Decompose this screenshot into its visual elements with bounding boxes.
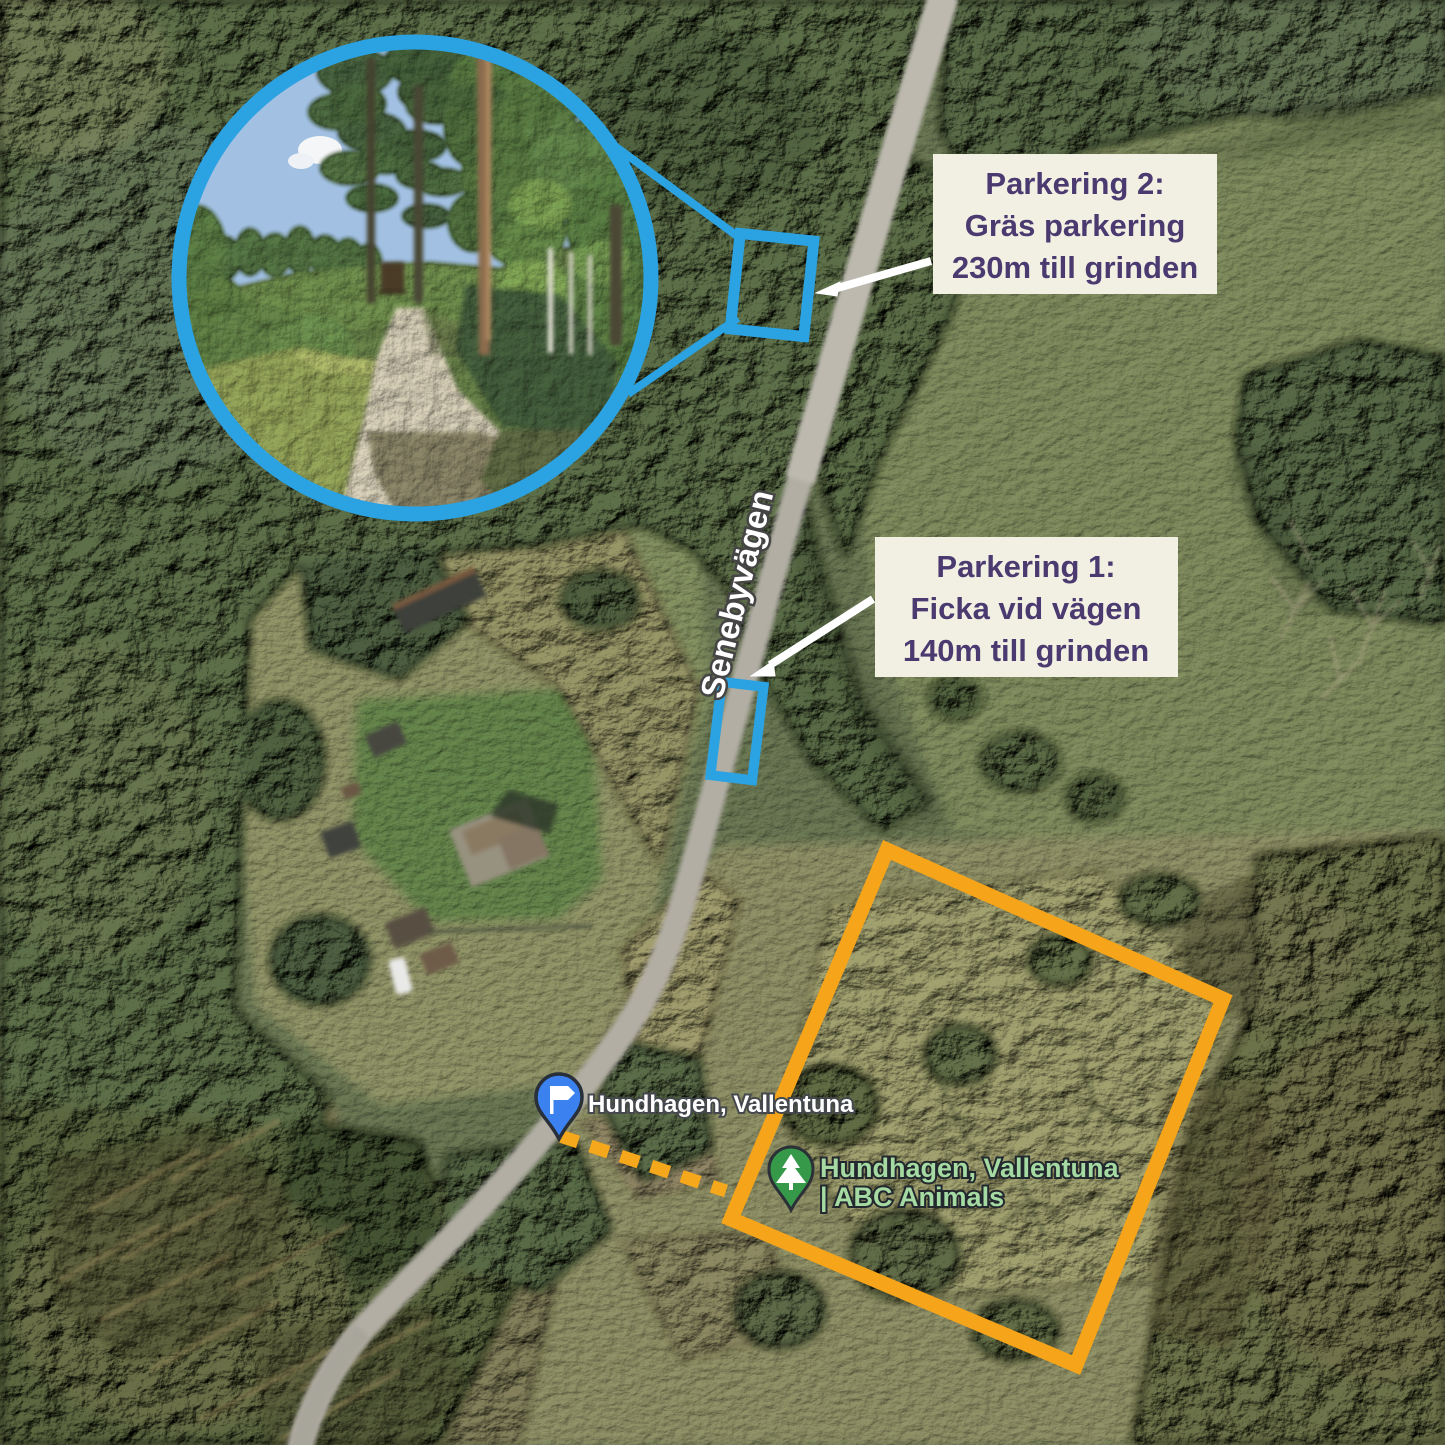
svg-text:140m till grinden: 140m till grinden [903, 633, 1149, 668]
svg-text:230m till grinden: 230m till grinden [952, 250, 1198, 285]
svg-text:Ficka vid vägen: Ficka vid vägen [911, 591, 1142, 626]
svg-text:Parkering 1:: Parkering 1: [936, 549, 1115, 584]
svg-text:Gräs parkering: Gräs parkering [965, 208, 1186, 243]
svg-text:Parkering 2:: Parkering 2: [985, 166, 1164, 201]
svg-text:| ABC Animals: | ABC Animals [820, 1182, 1004, 1212]
svg-text:Hundhagen, Vallentuna: Hundhagen, Vallentuna [588, 1091, 854, 1118]
svg-text:Hundhagen, Vallentuna: Hundhagen, Vallentuna [820, 1153, 1120, 1183]
